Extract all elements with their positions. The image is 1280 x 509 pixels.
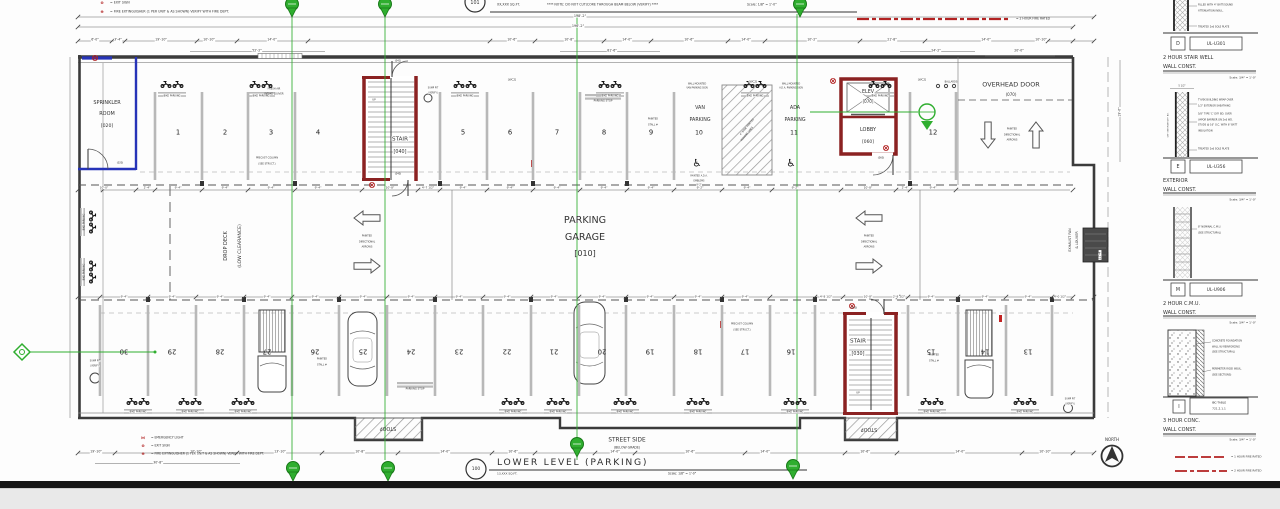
label-details_panel-1-title1: EXTERIOR (1163, 178, 1188, 183)
stall-number: 12 (929, 129, 938, 136)
label-details_panel-2-annotations-1: (SEE STRUCTURAL) (1198, 231, 1221, 234)
label-plan-top_dims-10: 10'-2" (807, 38, 817, 41)
label-details_panel-1-annotations-0: TYVEK BUILDING WRAP OVER (1198, 99, 1233, 102)
keynote-balloon-icon (571, 438, 584, 458)
label-plan-rooms-garage-0: PARKING (564, 216, 606, 226)
label-plan-stall_dim: 9'-4" (550, 295, 558, 298)
north-arrow-icon (1102, 446, 1123, 467)
label-plan-notes-painted_arrows-1: DIRECTIONAL (861, 240, 877, 243)
label-plan-rooms-exhaust-0: EXHAUST FAN (1068, 228, 1072, 251)
directional-arrow-icon (981, 122, 995, 148)
label-plan-stall_dim: 9'-4" (553, 186, 561, 189)
label-plan-bottom_dims2-0: 30'-8" (153, 461, 163, 464)
label-plan-top_dims-9: 14'-0" (741, 38, 751, 41)
label-top_strip-scale: Scale: 1/8" = 1'-0" (747, 3, 777, 6)
label-plan-notes-painted_arrows-1: DIRECTIONAL (359, 240, 375, 243)
directional-arrow-icon (856, 259, 882, 273)
label-top_strip-note: XX,XXX SQ.FT. (497, 3, 520, 6)
label-plan-notes-wall_mounted_van-0: WALL MOUNTED (688, 82, 706, 84)
fire-extinguisher-icon: ⊕ (141, 452, 144, 456)
label-plan-bottom_dims-8: 14'-0" (760, 450, 770, 453)
label-plan-notes-street_side-1: (BELOW GRADE) (614, 446, 640, 449)
label-plan-top_dims-2: 19'-10" (155, 38, 167, 41)
stall-number: 24 (407, 347, 416, 354)
label-plan-stall_dim: 9'-4" (455, 295, 463, 298)
keynote-balloon-icon (382, 462, 395, 482)
stall-number: 23 (455, 347, 464, 354)
label-plan-notes-stoop: STOOP (380, 425, 396, 430)
label-plan-stall_dim: 9'-4" (359, 295, 367, 298)
label-top_strip-legend-0-text: = EXIT SIGN (110, 1, 130, 4)
label-details_panel-2-ul: UL-U906 (1207, 287, 1226, 292)
label-details_panel-2-tag: M (1176, 287, 1180, 292)
label-plan-notes-sump-0: SUMP PIT (1065, 398, 1076, 400)
label-plan-bottom_dim_specials-2: 2'-8 1/2" (892, 295, 905, 298)
label-details_panel-1-side: 5/8" EXTERIOR GYP. BD. (1167, 113, 1169, 138)
label-plan-top_dim_specials-2: 10'-8" (385, 186, 394, 189)
label-plan-notes-painted_stall-0: PAINTED (929, 354, 939, 357)
label-plan-top_dims-3: 10'-10" (203, 38, 215, 41)
label-plan-notes-precast-0: PRECAST COLUMN (256, 157, 279, 160)
label-plan-rooms-overhead-1: (070) (1006, 93, 1017, 97)
label-plan-rooms-garage-2: [010] (574, 250, 596, 258)
label-plan-notes-bike_parking: BIKE PARKING (83, 264, 86, 281)
label-plan-bottom_dim_specials-0: 4'-8 1/2" (819, 295, 832, 298)
label-plan-stall_dim: 9'-4" (221, 186, 229, 189)
label-plan-notes-sump-1: (VERIFY) (428, 91, 438, 93)
label-plan-stall_dim: 9'-4" (314, 186, 322, 189)
label-details_panel-0-tag: D (1176, 41, 1180, 46)
label-plan-top_dims2-2: 24'-2" (931, 49, 941, 52)
wheelchair-icon: ♿ (786, 159, 795, 170)
stall-number: 5 (461, 129, 465, 136)
label-plan-north_label: NORTH (1105, 438, 1119, 442)
label-plan-stall_dim: 9'-4" (120, 295, 128, 298)
label-plan-bottom_dims-6: 14'-0" (610, 450, 620, 453)
label-details_panel-1-tag: E (1176, 164, 1179, 169)
stall-number: 22 (503, 347, 512, 354)
fire-extinguisher-icon: ⊕ (100, 10, 103, 14)
label-plan-notes-precast-0: PRECAST COLUMN (731, 323, 754, 326)
label-plan-rooms-stair040-0: STAIR (391, 136, 408, 142)
label-plan-top_dim_specials-3: 4'-7 1/2" (421, 186, 434, 189)
label-details_panel-1-dim: 5 1/2" (1178, 85, 1186, 88)
label-plan-top_dims2-3: 20'-0" (1014, 49, 1024, 52)
label-plan-bottom_dims-7: 10'-6" (685, 450, 695, 453)
label-plan-stall_dim: 9'-4" (1024, 295, 1032, 298)
label-legend_bottom-0-text: = EMERGENCY LIGHT (151, 436, 184, 439)
stall-number: 9 (649, 129, 653, 136)
label-plan-notes-painted_stall-1: STALL # (648, 123, 658, 126)
label-plan-top_dims-8: 10'-6" (684, 38, 694, 41)
label-details_panel-3-title2: WALL CONST. (1163, 427, 1196, 432)
label-plan-notes-doors-1: (040) (395, 173, 401, 176)
stall-number: 25 (359, 347, 368, 354)
label-plan-bottom_dim_specials-3: 4'-0 1/2" (1053, 295, 1066, 298)
label-plan-rooms-van-1: PARKING (689, 117, 710, 122)
label-details_panel-3-annotations-0: CONCRETE FOUNDATION (1212, 340, 1242, 343)
window-chrome-strip (0, 488, 1280, 509)
label-plan-top_dims2-0: 52'-2" (252, 49, 262, 52)
label-plan-notes-bike_parking: BIKE PARKING (786, 411, 803, 414)
label-plan-rooms-stair040-1: [040] (393, 149, 407, 154)
label-plan-notes-painted_arrows-2: ARROWS (864, 246, 875, 249)
label-details_panel-1-annotations-2: 5/8" TYPE 'C' GYP. BD. OVER (1198, 113, 1232, 116)
label-plan-notes-doors-4: (060) (878, 157, 884, 160)
label-plan-notes-wc2: [WC2] (507, 79, 516, 82)
label-plan-rooms-ada-2: 11 (790, 130, 798, 136)
label-plan-stall_dim: 9'-4" (174, 186, 182, 189)
label-details_panel-3-title1: 3 HOUR CONC. (1163, 418, 1200, 423)
label-plan-rooms-garage-1: GARAGE (565, 233, 605, 243)
stall-number: 3 (269, 129, 273, 136)
label-plan-rooms-lobby-0: LOBBY (859, 127, 876, 132)
stall-number: 7 (555, 129, 559, 136)
label-plan-notes-fresh_air-0: FRESH AIR (268, 88, 281, 91)
stall-number: 17 (741, 347, 750, 354)
label-plan-top_dims2-1: 81'-6" (607, 49, 617, 52)
label-plan-bottom_dims-4: 14'-0" (440, 450, 450, 453)
label-plan-notes-painted_stall-0: PAINTED (317, 358, 327, 361)
label-plan-stall_dim: 9'-4" (927, 295, 935, 298)
label-details_panel-0-title2: WALL CONST. (1163, 64, 1196, 69)
label-plan-bottom_dims-5: 10'-6" (508, 450, 518, 453)
stall-number: 20 (598, 347, 607, 354)
label-details_panel-1-annotations-4: STUDS @ 16" O.C. WITH 6" BATT (1198, 124, 1237, 127)
directional-arrow-icon (1029, 122, 1043, 148)
label-plan-notes-bike_parking: BIKE PARKING (871, 95, 888, 98)
label-plan-stall_dim: 9'-4" (263, 295, 271, 298)
stall-number: 8 (602, 129, 606, 136)
label-legend_bottom-1-text: = EXIT SIGN (151, 444, 170, 447)
label-legend_bottom-2-text: = FIRE EXTINGUISHER (1 PER UNIT & AS SHO… (151, 452, 264, 455)
label-plan-stall_dim: 9'-4" (981, 295, 989, 298)
keynote-balloon-icon (794, 0, 807, 17)
label-details_panel-0-annotations-1: ATTENUATION INSUL. (1198, 9, 1223, 12)
stall-number: 1 (176, 129, 180, 136)
label-plan-notes-painted_arrows-0: PAINTED (1007, 128, 1017, 131)
label-plan-bottom_dims-0: 19'-10" (90, 450, 102, 453)
label-details_panel-1-annotations-6: TREATED 2x6 SOLE PLATE (1198, 148, 1229, 151)
label-plan-rooms-sprinkler-1: ROOM (99, 111, 115, 116)
label-plan-stall_dim: 9'-4" (741, 295, 749, 298)
stall-number: 14 (981, 347, 990, 354)
label-plan-notes-ballards: BALLARDS (945, 81, 958, 84)
label-details_panel-1-annotations-1: 1/2" EXTERIOR SHEATHING (1198, 104, 1230, 107)
label-plan-overall_dim_2: 196'-2" (571, 24, 584, 28)
label-details_panel-1-ul: UL-U356 (1207, 164, 1226, 169)
label-plan-notes-wall_mounted_ada-1: A.D.A. PARKING SIGN (779, 87, 803, 89)
stall-number: 29 (168, 347, 177, 354)
label-plan-notes-bike_parking: BIKE PARKING (616, 411, 633, 414)
exit-sign-icon: ⊗ (100, 1, 103, 5)
label-details_panel-2-scale: Scale: 3/4" = 1'-0" (1229, 321, 1256, 324)
stall-number: 2 (223, 129, 227, 136)
label-details_panel-1-scale: Scale: 3/4" = 1'-0" (1229, 198, 1256, 201)
stall-number: 21 (550, 347, 559, 354)
stall-number: 19 (646, 347, 655, 354)
label-details_panel-3-scale: Scale: 3/4" = 1'-0" (1229, 438, 1256, 441)
label-plan-stall_dim: 9'-4" (503, 295, 511, 298)
label-plan-notes-wall_mounted_ada-0: WALL MOUNTED (782, 82, 800, 84)
label-plan-top_dims-11: 21'-8" (887, 38, 897, 41)
label-plan-notes-painted_stall-0: PAINTED (648, 118, 658, 121)
keynote-balloon-icon (379, 0, 392, 17)
label-details_panel-1-annotations-3: VAPOR BARRIER ON 2x6 WD. (1198, 118, 1233, 121)
label-plan-notes-sump-0: SUMP PIT (90, 360, 101, 362)
label-details_panel-0-scale: Scale: 3/4" = 1'-0" (1229, 76, 1256, 79)
label-plan-notes-painted_arrows-0: PAINTED (362, 235, 372, 238)
label-details_panel-2-title2: WALL CONST. (1163, 310, 1196, 315)
label-plan-notes-painted_arrows-0: PAINTED (864, 235, 874, 238)
label-plan-stall_dim: 9'-4" (267, 186, 275, 189)
label-plan-rooms-ada-1: PARKING (784, 117, 805, 122)
louver-top (258, 54, 302, 59)
label-plan-stall_dim: 9'-4" (168, 295, 176, 298)
label-plan-top_dims-6: 10'-8" (564, 38, 574, 41)
label-plan-notes-bike_parking: BIKE PARKING (163, 95, 180, 98)
label-plan-stall_dim: 9'-4" (216, 295, 224, 298)
exhaust-fan (1083, 228, 1108, 262)
label-plan-side_dims-0: 19'-6" (1118, 107, 1121, 117)
stall-number: 4 (316, 129, 320, 136)
label-plan-rooms-stair030-1: [030] (851, 351, 865, 356)
directional-arrow-icon (354, 259, 380, 273)
label-plan-top_dims-7: 14'-0" (622, 38, 632, 41)
label-plan-rooms-ada-0: ADA (790, 105, 800, 110)
viewer-bottom-edge (0, 481, 1280, 488)
label-plan-stall_dim: 9'-4" (407, 295, 415, 298)
label-details_panel-1-title2: WALL CONST. (1163, 187, 1196, 192)
label-plan-top_dim_specials-7: 2'-4" (901, 186, 909, 189)
stair-040 (362, 61, 418, 196)
label-plan-notes-ada_emblems-1: EMBLEMS (693, 179, 704, 181)
label-plan-notes-wc2: [WC2] (748, 81, 757, 84)
title-lines (465, 0, 857, 479)
label-plan-notes-ada_emblems-2: 9'-2" (696, 184, 702, 186)
label-plan-stall_dim: 9'-4" (598, 295, 606, 298)
label-plan-notes-bike_parking: BIKE PARKING (746, 95, 763, 98)
label-plan-top_dim_specials-1: 2'-4" (143, 186, 151, 189)
label-plan-stall_dim: 9'-4" (694, 295, 702, 298)
label-plan-notes-wc2: [WC2] (917, 79, 926, 82)
label-plan-notes-doors-3: (030) (851, 307, 857, 310)
label-plan-notes-painted_arrows-2: ARROWS (1007, 139, 1018, 142)
label-plan-side_dims-1: 11'-4" (1098, 250, 1101, 260)
label-plan-bottom_dims-3: 10'-8" (355, 450, 365, 453)
label-plan-bottom_dims-9: 10'-6" (860, 450, 870, 453)
label-plan-rooms-overhead-0: OVERHEAD DOOR (982, 82, 1039, 89)
keynote-balloon-icon (287, 462, 300, 482)
label-plan-notes-bike_parking: BIKE PARKING (234, 411, 251, 414)
label-plan-rooms-dropdeck-0: DROP DECK (223, 231, 228, 260)
label-plan-notes-bike_parking: BIKE PARKING (83, 214, 86, 231)
label-plan-bottom_dims-11: 10'-10" (1039, 450, 1051, 453)
label-plan-notes-up: UP (856, 392, 859, 395)
label-plan-notes-bike_parking: BIKE PARKING (504, 411, 521, 414)
label-plan-notes-ada_emblems-0: PAINTED A.D.A. (690, 175, 708, 177)
label-plan-top_dim_specials-5: 9'-2" (791, 186, 799, 189)
label-plan-notes-bike_parking: BIKE PARKING (923, 411, 940, 414)
floor-plan-sheet: ⊗= EXIT SIGN⊕= FIRE EXTINGUISHER (1 PER … (0, 0, 1280, 509)
label-plan-notes-street_side-0: STREET SIDE (608, 437, 645, 443)
label-plan-rooms-dropdeck-1: (LOW CLEARANCE) (238, 224, 243, 268)
floor-plan-linework (0, 0, 1280, 509)
label-plan-notes-bike_parking: BIKE PARKING (689, 411, 706, 414)
label-plan-notes-sump-1: (VERIFY) (1065, 402, 1075, 404)
label-plan-stall_dim: 9'-4" (600, 186, 608, 189)
label-details_panel-3-ul2: 721.2.1.1 (1212, 407, 1226, 410)
label-plan-rooms-lobby-1: [060] (862, 140, 875, 145)
stall-number: 16 (787, 347, 796, 354)
label-details_panel-0-annotations-0: FILLED WITH 4" BATT/SOUND (1198, 4, 1233, 7)
label-details_panel-3-annotations-1: WALL W/ REINFORCING (1212, 345, 1240, 348)
label-plan-notes-stoop: STOOP (861, 426, 877, 431)
label-plan-rooms-elev-1: [070] (862, 100, 874, 104)
label-details_panel-3-annotations-4: (SEE SECTIONS) (1212, 373, 1231, 376)
stall-number: 30 (120, 347, 129, 354)
label-plan-bottom_dim_specials-1: 10'-8" (863, 295, 872, 298)
label-plan-notes-painted_stall-1: STALL # (317, 363, 327, 366)
label-plan-notes-bike_parking: BIKE PARKING (252, 95, 269, 98)
label-plan-rooms-van-0: VAN (695, 105, 705, 110)
label-plan-notes-precast-1: (SEE STRUCT.) (258, 162, 276, 165)
label-plan-notes-painted_arrows-1: DIRECTIONAL (1004, 133, 1020, 136)
label-plan-stall_dim: 9'-4" (743, 186, 751, 189)
label-plan-stall_dim: 9'-4" (506, 186, 514, 189)
label-plan-top_dim_specials-6: 10'-8" (863, 186, 872, 189)
label-plan-bottom_dims-2: 13'-10" (274, 450, 286, 453)
label-details_panel-3-annotations-3: PERIMETER RIGID INSUL. (1212, 368, 1242, 371)
label-plan-top_dims-13: 10'-10" (1035, 38, 1047, 41)
label-plan-top_dims-0: 6'-0" (91, 38, 99, 41)
label-plan-notes-painted_arrows-2: ARROWS (362, 246, 373, 249)
label-plan-notes-doors-0: (020) (117, 162, 123, 165)
label-plan-stall_dim: 9'-4" (459, 186, 467, 189)
label-top_strip-note2: **** NOTE: DO NOT CUT/CORE THROUGH BEAM … (547, 3, 658, 6)
label-plan-notes-precast-1: (SEE STRUCT.) (733, 328, 751, 331)
page-title: LOWER LEVEL (PARKING) (497, 458, 648, 468)
label-details_panel-0-title1: 2 HOUR STAIR WELL (1163, 55, 1213, 60)
label-details_panel-3-tag: I (1178, 404, 1179, 409)
label-title_block-scale: Scale: 1/8" = 1'-0" (668, 472, 696, 475)
label-plan-notes-wall_mounted_van-1: VAN PARKING SIGN (686, 87, 707, 89)
exit-sign-icon: ⊗ (141, 444, 144, 448)
label-plan-stall_dim: 9'-4" (929, 186, 937, 189)
label-plan-top_dims-5: 10'-6" (507, 38, 517, 41)
label-plan-notes-parking_stop: PARKING STOP (406, 388, 425, 391)
label-plan-rooms-van-2: 10 (695, 130, 703, 136)
stall-number: 13 (1024, 347, 1033, 354)
stall-number: 6 (508, 129, 512, 136)
label-plan-notes-painted_stall-1: STALL # (929, 359, 939, 362)
label-plan-notes-bike_parking: BIKE PARKING (181, 411, 198, 414)
label-details_panel-3-annotations-2: (SEE STRUCTURAL) (1212, 351, 1235, 354)
stall-number: 28 (216, 347, 225, 354)
bollards (936, 84, 955, 87)
label-plan-top_dim_specials-4: 9'-2" (696, 186, 704, 189)
stall-number: 27 (263, 347, 272, 354)
label-plan-top_dims-4: 14'-0" (267, 38, 277, 41)
stall-number: 18 (694, 347, 703, 354)
directional-arrow-icon (856, 211, 882, 225)
label-plan-stall_dim: 9'-4" (646, 295, 654, 298)
label-details_panel-0-annotations-2: TREATED 2x6 SOLE PLATE (1198, 26, 1229, 29)
label-title_block-area: 13,XXX SQ.FT. (497, 472, 517, 475)
label-plan-notes-bike_parking: BIKE PARKING (129, 411, 146, 414)
label-plan-notes-sump-1: (VERIFY) (90, 364, 100, 366)
directional-arrow-icon (354, 211, 380, 225)
label-plan-top_dims-12: 14'-0" (981, 38, 991, 41)
plan-ref-bubble: 100 (472, 467, 480, 472)
label-plan-top_dim_specials-0: 10'-0" (99, 186, 108, 189)
label-plan-notes-sump-0: SUMP PIT (428, 87, 439, 89)
keynote-balloon-icon (286, 0, 299, 17)
emergency-light-icon: ⋈ (141, 436, 145, 440)
label-fire_legend_br-1: = 2 HOUR FIRE RATED (1231, 470, 1261, 473)
label-details_panel-1-annotations-5: INSULATION (1198, 129, 1212, 132)
upper-plan-ref-bubble: 101 (470, 0, 479, 5)
label-details_panel-2-annotations-0: 8" NOMINAL C.M.U. (1198, 226, 1221, 229)
label-plan-stall_dim: 9'-4" (647, 186, 655, 189)
label-plan-rooms-exhaust-1: & LOUVER (1075, 231, 1079, 248)
label-plan-stall_dim: 9'-4" (311, 295, 319, 298)
label-plan-notes-bike_parking: BIKE PARKING (601, 95, 618, 98)
label-plan-top_dims-1: 3'-4" (114, 38, 122, 41)
label-plan-notes-bike_parking: BIKE PARKING (1016, 411, 1033, 414)
label-details_panel-0-ul: UL-U301 (1207, 41, 1226, 46)
label-plan-notes-parking_stop: PARKING STOP (594, 100, 613, 103)
label-details_panel-3-ul1: IBC-TABLE (1212, 401, 1226, 404)
keynote-balloon-icon (787, 460, 800, 480)
label-plan-notes-doors-2: (041) (395, 60, 401, 63)
label-plan-rooms-stair030-0: STAIR (849, 338, 866, 344)
label-details_panel-2-title1: 2 HOUR C.M.U. (1163, 301, 1200, 306)
label-fire_legend_br-0: = 1 HOUR FIRE RATED (1231, 456, 1261, 459)
keynote-diamond-icon (14, 344, 30, 360)
label-plan-notes-up: UP (372, 99, 375, 102)
label-plan-overall_dim_1: 198'-2" (573, 14, 586, 18)
label-plan-notes-bike_parking: BIKE PARKING (456, 95, 473, 98)
label-top_strip-legend-1-text: = FIRE EXTINGUISHER (1 PER UNIT & AS SHO… (110, 10, 229, 13)
label-plan-bottom_dims-10: 14'-0" (955, 450, 965, 453)
sprinkler-door (88, 149, 108, 169)
label-top_strip-fire_legend: = 2 HOUR FIRE RATED (1016, 17, 1050, 20)
label-plan-notes-bike_parking: BIKE PARKING (549, 411, 566, 414)
stall-number: 26 (311, 347, 320, 354)
exit-sign-icon (830, 78, 835, 83)
label-plan-rooms-sprinkler-0: SPRINKLER (93, 100, 120, 105)
wheelchair-icon: ♿ (692, 159, 701, 170)
label-plan-rooms-sprinkler-2: [020] (101, 124, 113, 129)
